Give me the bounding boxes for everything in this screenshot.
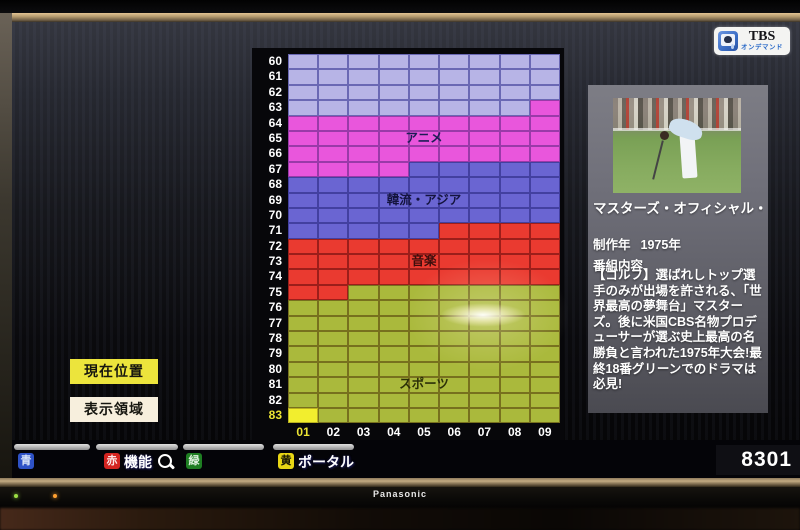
red-key-button[interactable]: 赤 bbox=[104, 453, 120, 469]
grid-col-label: 05 bbox=[409, 425, 439, 440]
grid-cell[interactable] bbox=[318, 54, 348, 69]
grid-cell[interactable] bbox=[348, 223, 378, 238]
grid-cell[interactable] bbox=[379, 223, 409, 238]
grid-cell[interactable] bbox=[288, 346, 318, 361]
grid-cell[interactable] bbox=[379, 346, 409, 361]
function-label[interactable]: 機能 bbox=[124, 452, 152, 472]
grid-cell[interactable] bbox=[348, 331, 378, 346]
grid-cell[interactable] bbox=[409, 223, 439, 238]
grid-cell[interactable] bbox=[409, 85, 439, 100]
grid-cell[interactable] bbox=[379, 285, 409, 300]
grid-cell[interactable] bbox=[348, 254, 378, 269]
grid-cell[interactable] bbox=[348, 146, 378, 161]
blue-key-button[interactable]: 青 bbox=[18, 453, 34, 469]
grid-cell[interactable] bbox=[348, 54, 378, 69]
grid-cell[interactable] bbox=[530, 223, 560, 238]
grid-cell[interactable] bbox=[348, 208, 378, 223]
grid-cell[interactable] bbox=[500, 239, 530, 254]
grid-cell[interactable] bbox=[379, 69, 409, 84]
grid-cell[interactable] bbox=[530, 69, 560, 84]
grid-cell[interactable] bbox=[439, 269, 469, 284]
tv-bezel-top bbox=[0, 13, 800, 22]
photo-of-tv: TBS オンデマンド 60616263646566676869707172737… bbox=[0, 0, 800, 530]
grid-cell[interactable] bbox=[348, 393, 378, 408]
grid-cell[interactable] bbox=[439, 285, 469, 300]
grid-cell[interactable] bbox=[439, 239, 469, 254]
grid-cell[interactable] bbox=[379, 300, 409, 315]
grid-cell[interactable] bbox=[379, 393, 409, 408]
channel-grid-panel: 6061626364656667686970717273747576777879… bbox=[252, 48, 564, 446]
grid-cell[interactable] bbox=[530, 408, 560, 423]
grid-cell[interactable] bbox=[500, 177, 530, 192]
grid-row-label: 63 bbox=[252, 100, 288, 115]
grid-cell[interactable] bbox=[288, 54, 318, 69]
grid-cell[interactable] bbox=[469, 85, 499, 100]
grid-cell[interactable] bbox=[409, 269, 439, 284]
grid-col-label: 06 bbox=[439, 425, 469, 440]
grid-cell[interactable] bbox=[348, 131, 378, 146]
tv-bezel-bottom-strip bbox=[0, 478, 800, 487]
grid-cell[interactable] bbox=[469, 316, 499, 331]
grid-col-label: 07 bbox=[469, 425, 499, 440]
grid-cell[interactable] bbox=[318, 346, 348, 361]
grid-cell[interactable] bbox=[500, 69, 530, 84]
grid-row-label: 70 bbox=[252, 208, 288, 223]
grid-cell[interactable] bbox=[469, 162, 499, 177]
grid-cell[interactable] bbox=[500, 393, 530, 408]
grid-cell[interactable] bbox=[379, 146, 409, 161]
grid-cell[interactable] bbox=[469, 269, 499, 284]
grid-cell[interactable] bbox=[530, 116, 560, 131]
grid-cell[interactable] bbox=[469, 346, 499, 361]
production-year-value: 1975年 bbox=[641, 238, 681, 252]
grid-cell[interactable] bbox=[318, 300, 348, 315]
grid-cell[interactable] bbox=[348, 85, 378, 100]
grid-cell[interactable] bbox=[409, 331, 439, 346]
grid-cell[interactable] bbox=[288, 362, 318, 377]
grid-cell[interactable] bbox=[500, 193, 530, 208]
tbs-ondemand-logo: TBS オンデマンド bbox=[714, 27, 790, 55]
grid-row-label: 73 bbox=[252, 254, 288, 269]
grid-row-label: 68 bbox=[252, 177, 288, 192]
grid-row-label: 76 bbox=[252, 300, 288, 315]
channel-number: 8301 bbox=[716, 445, 800, 475]
grid-row-label: 75 bbox=[252, 285, 288, 300]
grid-col-label: 03 bbox=[348, 425, 378, 440]
panasonic-logo: Panasonic bbox=[0, 489, 800, 499]
program-title: マスターズ・オフィシャル・… bbox=[593, 197, 763, 217]
grid-cell[interactable] bbox=[409, 69, 439, 84]
grid-cell[interactable] bbox=[469, 177, 499, 192]
grid-cell[interactable] bbox=[288, 377, 318, 392]
grid-cell[interactable] bbox=[530, 162, 560, 177]
grid-cell[interactable] bbox=[469, 146, 499, 161]
grid-cell[interactable] bbox=[318, 393, 348, 408]
grid-cell[interactable] bbox=[469, 100, 499, 115]
grid-row-label: 82 bbox=[252, 393, 288, 408]
grid-cell[interactable] bbox=[318, 85, 348, 100]
grid-cell[interactable] bbox=[379, 131, 409, 146]
grid-cell[interactable] bbox=[409, 408, 439, 423]
grid-cell[interactable] bbox=[379, 116, 409, 131]
grid-cell[interactable] bbox=[288, 69, 318, 84]
grid-rows: 6061626364656667686970717273747576777879… bbox=[252, 54, 564, 423]
grid-cell[interactable] bbox=[500, 331, 530, 346]
grid-cell[interactable] bbox=[288, 208, 318, 223]
grid-cell[interactable] bbox=[409, 162, 439, 177]
grid-cell[interactable] bbox=[379, 100, 409, 115]
grid-cell[interactable] bbox=[409, 116, 439, 131]
grid-cell[interactable] bbox=[439, 362, 469, 377]
grid-cell[interactable] bbox=[288, 100, 318, 115]
grid-cell[interactable] bbox=[348, 346, 378, 361]
grid-cell[interactable] bbox=[348, 239, 378, 254]
function-key-shelf bbox=[14, 444, 90, 450]
grid-row-label: 80 bbox=[252, 362, 288, 377]
grid-col-label: 09 bbox=[530, 425, 560, 440]
grid-cell[interactable] bbox=[348, 177, 378, 192]
grid-cell[interactable] bbox=[439, 54, 469, 69]
grid-cell[interactable] bbox=[530, 177, 560, 192]
grid-cell[interactable] bbox=[439, 100, 469, 115]
grid-cell[interactable] bbox=[530, 131, 560, 146]
grid-row-label: 66 bbox=[252, 146, 288, 161]
grid-cell[interactable] bbox=[500, 208, 530, 223]
grid-row-label: 67 bbox=[252, 162, 288, 177]
grid-cell[interactable] bbox=[348, 300, 378, 315]
grid-cell[interactable] bbox=[409, 131, 439, 146]
grid-cell[interactable] bbox=[439, 177, 469, 192]
grid-cell[interactable] bbox=[409, 100, 439, 115]
grid-cell[interactable] bbox=[439, 254, 469, 269]
grid-cell[interactable] bbox=[318, 146, 348, 161]
grid-cell[interactable] bbox=[500, 146, 530, 161]
grid-cell[interactable] bbox=[500, 316, 530, 331]
grid-cell[interactable] bbox=[379, 316, 409, 331]
grid-row-label: 74 bbox=[252, 269, 288, 284]
grid-cell[interactable] bbox=[379, 208, 409, 223]
grid-cell[interactable] bbox=[348, 285, 378, 300]
grid-cell[interactable] bbox=[318, 408, 348, 423]
tv-bezel-lower: Panasonic bbox=[0, 487, 800, 508]
grid-cell[interactable] bbox=[318, 208, 348, 223]
current-position-button[interactable]: 現在位置 bbox=[70, 359, 158, 384]
grid-cell[interactable] bbox=[469, 116, 499, 131]
grid-row-label: 79 bbox=[252, 346, 288, 361]
tbs-sub-text: オンデマンド bbox=[741, 45, 783, 52]
grid-cell[interactable] bbox=[409, 254, 439, 269]
grid-cell[interactable] bbox=[288, 116, 318, 131]
grid-cell[interactable] bbox=[439, 393, 469, 408]
grid-cell[interactable] bbox=[379, 254, 409, 269]
grid-cell[interactable] bbox=[409, 208, 439, 223]
grid-cell[interactable] bbox=[530, 254, 560, 269]
grid-cell[interactable] bbox=[500, 377, 530, 392]
grid-cell[interactable] bbox=[500, 116, 530, 131]
grid-cell[interactable] bbox=[500, 362, 530, 377]
grid-cell[interactable] bbox=[318, 377, 348, 392]
current-position-cell[interactable] bbox=[288, 408, 318, 423]
yellow-key-button[interactable]: 黄 bbox=[278, 453, 294, 469]
grid-cell[interactable] bbox=[318, 100, 348, 115]
grid-cell[interactable] bbox=[530, 269, 560, 284]
grid-cell[interactable] bbox=[530, 346, 560, 361]
grid-cell[interactable] bbox=[530, 331, 560, 346]
grid-cell[interactable] bbox=[530, 362, 560, 377]
grid-cell[interactable] bbox=[469, 254, 499, 269]
program-info-panel: マスターズ・オフィシャル・… 制作年1975年 番組内容 【ゴルフ】選ばれしトッ… bbox=[588, 85, 768, 413]
grid-cell[interactable] bbox=[318, 239, 348, 254]
grid-cell[interactable] bbox=[500, 85, 530, 100]
grid-cell[interactable] bbox=[439, 162, 469, 177]
grid-row-label: 72 bbox=[252, 239, 288, 254]
grid-cell[interactable] bbox=[409, 377, 439, 392]
grid-cell[interactable] bbox=[288, 316, 318, 331]
grid-cell[interactable] bbox=[409, 193, 439, 208]
grid-cell[interactable] bbox=[409, 393, 439, 408]
grid-cell[interactable] bbox=[439, 223, 469, 238]
grid-cell[interactable] bbox=[530, 316, 560, 331]
photo-background-top bbox=[0, 0, 800, 13]
grid-cell[interactable] bbox=[469, 377, 499, 392]
grid-cell[interactable] bbox=[469, 331, 499, 346]
grid-cell[interactable] bbox=[500, 100, 530, 115]
grid-row-label: 77 bbox=[252, 316, 288, 331]
portal-label[interactable]: ポータル bbox=[298, 452, 354, 472]
grid-cell[interactable] bbox=[530, 393, 560, 408]
grid-cell[interactable] bbox=[409, 285, 439, 300]
grid-cell[interactable] bbox=[500, 408, 530, 423]
grid-cell[interactable] bbox=[348, 377, 378, 392]
tbs-mascot-icon bbox=[718, 31, 738, 51]
grid-cell[interactable] bbox=[439, 377, 469, 392]
grid-cell[interactable] bbox=[318, 254, 348, 269]
grid-cell[interactable] bbox=[439, 85, 469, 100]
grid-cell[interactable] bbox=[318, 269, 348, 284]
grid-cell[interactable] bbox=[469, 239, 499, 254]
grid-cell[interactable] bbox=[379, 331, 409, 346]
grid-cell[interactable] bbox=[318, 362, 348, 377]
grid-cell[interactable] bbox=[469, 300, 499, 315]
grid-cell[interactable] bbox=[379, 269, 409, 284]
grid-cell[interactable] bbox=[469, 223, 499, 238]
grid-cell[interactable] bbox=[288, 393, 318, 408]
grid-cell[interactable] bbox=[469, 193, 499, 208]
grid-cell[interactable] bbox=[409, 54, 439, 69]
green-key-button[interactable]: 緑 bbox=[186, 453, 202, 469]
grid-cell[interactable] bbox=[439, 331, 469, 346]
grid-cell[interactable] bbox=[348, 69, 378, 84]
grid-cell[interactable] bbox=[318, 116, 348, 131]
grid-cell[interactable] bbox=[500, 131, 530, 146]
grid-row-label: 62 bbox=[252, 85, 288, 100]
grid-cell[interactable] bbox=[288, 223, 318, 238]
grid-cell[interactable] bbox=[530, 85, 560, 100]
magnifier-icon[interactable] bbox=[158, 454, 172, 468]
grid-cell[interactable] bbox=[379, 193, 409, 208]
grid-cell[interactable] bbox=[348, 100, 378, 115]
grid-cell[interactable] bbox=[469, 362, 499, 377]
grid-cell[interactable] bbox=[288, 285, 318, 300]
grid-cell[interactable] bbox=[530, 285, 560, 300]
tv-bezel-left bbox=[0, 13, 12, 479]
grid-cell[interactable] bbox=[288, 146, 318, 161]
function-key-shelf bbox=[183, 444, 264, 450]
golf-club bbox=[652, 140, 664, 179]
grid-cell[interactable] bbox=[288, 85, 318, 100]
grid-cell[interactable] bbox=[409, 177, 439, 192]
function-key-shelf bbox=[273, 444, 354, 450]
grid-cell[interactable] bbox=[439, 131, 469, 146]
grid-cell[interactable] bbox=[409, 239, 439, 254]
grid-cell[interactable] bbox=[318, 177, 348, 192]
grid-col-label: 08 bbox=[500, 425, 530, 440]
grid-cell[interactable] bbox=[288, 331, 318, 346]
grid-row-label: 64 bbox=[252, 116, 288, 131]
grid-cell[interactable] bbox=[379, 54, 409, 69]
grid-cell[interactable] bbox=[379, 85, 409, 100]
grid-cell[interactable] bbox=[318, 69, 348, 84]
grid-cell[interactable] bbox=[318, 193, 348, 208]
grid-cell[interactable] bbox=[348, 116, 378, 131]
grid-cell[interactable] bbox=[318, 131, 348, 146]
grid-cell[interactable] bbox=[409, 362, 439, 377]
grid-cell[interactable] bbox=[409, 146, 439, 161]
grid-cell[interactable] bbox=[469, 69, 499, 84]
grid-cell[interactable] bbox=[288, 177, 318, 192]
grid-cell[interactable] bbox=[318, 316, 348, 331]
photo-background-bottom bbox=[0, 508, 800, 530]
grid-cell[interactable] bbox=[348, 408, 378, 423]
grid-cell[interactable] bbox=[469, 285, 499, 300]
grid-cell[interactable] bbox=[530, 377, 560, 392]
tv-screen: TBS オンデマンド 60616263646566676869707172737… bbox=[12, 22, 800, 478]
grid-col-label: 01 bbox=[288, 425, 318, 440]
grid-cell[interactable] bbox=[439, 193, 469, 208]
grid-cell[interactable] bbox=[409, 316, 439, 331]
grid-cell[interactable] bbox=[379, 408, 409, 423]
grid-row-label: 81 bbox=[252, 377, 288, 392]
grid-cell[interactable] bbox=[500, 162, 530, 177]
grid-cell[interactable] bbox=[288, 239, 318, 254]
grid-cell[interactable] bbox=[379, 377, 409, 392]
grid-row-label: 78 bbox=[252, 331, 288, 346]
grid-cell[interactable] bbox=[439, 69, 469, 84]
grid-cell[interactable] bbox=[530, 193, 560, 208]
production-year-label: 制作年 bbox=[593, 238, 631, 252]
grid-cell[interactable] bbox=[379, 362, 409, 377]
program-thumbnail bbox=[613, 98, 741, 193]
grid-cell[interactable] bbox=[318, 223, 348, 238]
grid-cell[interactable] bbox=[379, 162, 409, 177]
grid-cell[interactable] bbox=[348, 362, 378, 377]
grid-cell[interactable] bbox=[469, 408, 499, 423]
grid-cell[interactable] bbox=[318, 162, 348, 177]
grid-cell[interactable] bbox=[530, 54, 560, 69]
grid-cell[interactable] bbox=[439, 146, 469, 161]
grid-cell[interactable] bbox=[409, 300, 439, 315]
grid-cell[interactable] bbox=[439, 408, 469, 423]
grid-cell[interactable] bbox=[439, 300, 469, 315]
grid-col-label: 04 bbox=[379, 425, 409, 440]
grid-cell[interactable] bbox=[409, 346, 439, 361]
grid-cell[interactable] bbox=[439, 116, 469, 131]
grid-cell[interactable] bbox=[348, 193, 378, 208]
grid-row-label: 71 bbox=[252, 223, 288, 238]
grid-cell[interactable] bbox=[469, 131, 499, 146]
grid-cell[interactable] bbox=[439, 346, 469, 361]
grid-col-label: 02 bbox=[318, 425, 348, 440]
tbs-brand-text: TBS bbox=[749, 30, 775, 44]
grid-row-label: 69 bbox=[252, 193, 288, 208]
grid-cell[interactable] bbox=[500, 54, 530, 69]
grid-cell[interactable] bbox=[500, 346, 530, 361]
grid-cell[interactable] bbox=[530, 208, 560, 223]
grid-cell[interactable] bbox=[530, 146, 560, 161]
grid-cell[interactable] bbox=[439, 316, 469, 331]
grid-cell[interactable] bbox=[348, 269, 378, 284]
grid-row-label: 61 bbox=[252, 69, 288, 84]
grid-cell[interactable] bbox=[288, 162, 318, 177]
grid-cell[interactable] bbox=[288, 193, 318, 208]
grid-cell[interactable] bbox=[500, 300, 530, 315]
grid-cell[interactable] bbox=[500, 285, 530, 300]
grid-col-labels: 010203040506070809 bbox=[288, 425, 560, 440]
grid-cell[interactable] bbox=[530, 300, 560, 315]
grid-cell[interactable] bbox=[500, 269, 530, 284]
grid-cell[interactable] bbox=[530, 100, 560, 115]
grid-cell[interactable] bbox=[288, 131, 318, 146]
function-key-bar: 青 赤 機能 緑 黄 ポータル 8301 bbox=[12, 440, 800, 478]
display-area-button[interactable]: 表示領域 bbox=[70, 397, 158, 422]
grid-cell[interactable] bbox=[318, 285, 348, 300]
grid-cell[interactable] bbox=[288, 300, 318, 315]
grid-cell[interactable] bbox=[439, 208, 469, 223]
grid-cell[interactable] bbox=[500, 254, 530, 269]
grid-cell[interactable] bbox=[348, 162, 378, 177]
grid-cell[interactable] bbox=[530, 239, 560, 254]
grid-cell[interactable] bbox=[288, 269, 318, 284]
grid-row-label: 83 bbox=[252, 408, 288, 423]
grid-row-label: 60 bbox=[252, 54, 288, 69]
grid-cell[interactable] bbox=[288, 254, 318, 269]
program-description: 【ゴルフ】選ばれしトップ選手のみが出場を許される、「世界最高の夢舞台」マスターズ… bbox=[593, 268, 765, 393]
grid-row-label: 65 bbox=[252, 131, 288, 146]
grid-cell[interactable] bbox=[348, 316, 378, 331]
grid-cell[interactable] bbox=[379, 177, 409, 192]
grid-cell[interactable] bbox=[500, 223, 530, 238]
grid-cell[interactable] bbox=[469, 208, 499, 223]
grid-cell[interactable] bbox=[469, 393, 499, 408]
function-key-shelf bbox=[96, 444, 178, 450]
grid-cell[interactable] bbox=[379, 239, 409, 254]
grid-cell[interactable] bbox=[469, 54, 499, 69]
grid-cell[interactable] bbox=[318, 331, 348, 346]
